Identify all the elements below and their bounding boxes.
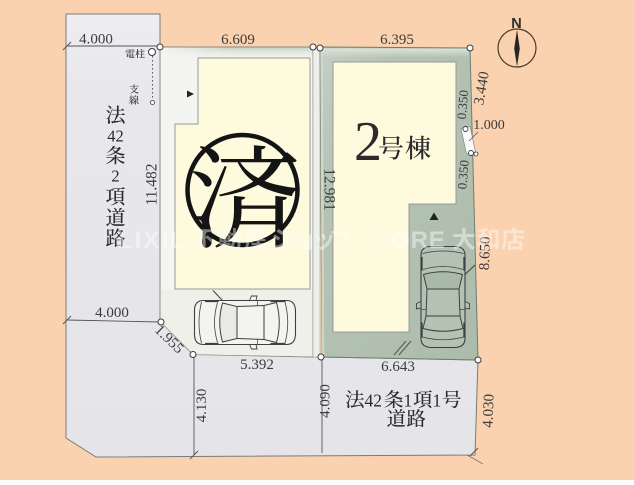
svg-text:0.350: 0.350 xyxy=(454,89,471,119)
svg-text:12.981: 12.981 xyxy=(321,168,338,211)
svg-text:6.395: 6.395 xyxy=(380,32,414,48)
svg-text:4.000: 4.000 xyxy=(95,305,129,321)
svg-text:CORE: CORE xyxy=(373,227,446,254)
svg-text:0.350: 0.350 xyxy=(454,159,471,189)
svg-text:1: 1 xyxy=(433,391,442,411)
svg-text:4.000: 4.000 xyxy=(79,32,113,48)
svg-text:1: 1 xyxy=(404,391,413,411)
svg-text:2: 2 xyxy=(111,167,119,186)
svg-text:4.030: 4.030 xyxy=(480,394,497,428)
svg-text:42: 42 xyxy=(365,391,383,411)
svg-text:4.130: 4.130 xyxy=(194,389,210,423)
svg-text:11.482: 11.482 xyxy=(144,163,161,205)
svg-text:4.090: 4.090 xyxy=(318,384,334,418)
svg-text:2: 2 xyxy=(354,111,382,173)
svg-text:5.392: 5.392 xyxy=(240,357,274,373)
svg-text:6.643: 6.643 xyxy=(381,359,415,375)
svg-text:1.000: 1.000 xyxy=(473,118,505,133)
svg-text:42: 42 xyxy=(107,127,124,146)
svg-text:N: N xyxy=(511,16,521,32)
svg-text:LIXIL: LIXIL xyxy=(118,227,187,254)
svg-text:6.609: 6.609 xyxy=(221,32,255,48)
